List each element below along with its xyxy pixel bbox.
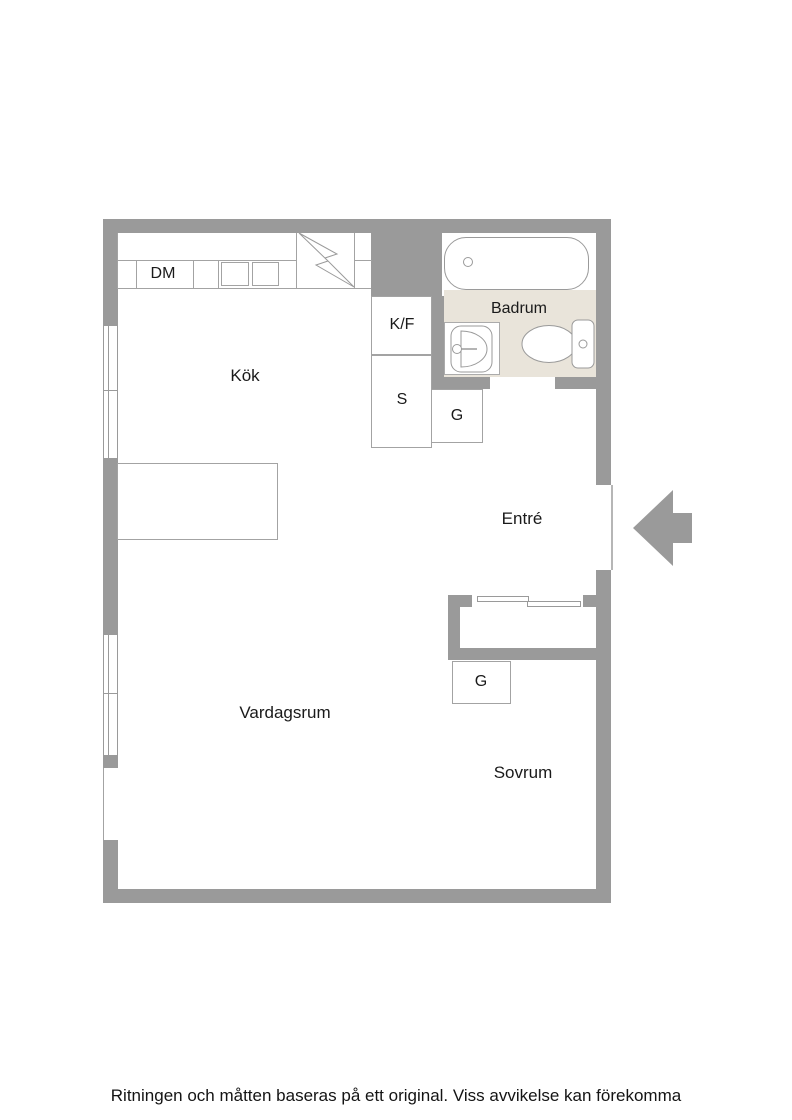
kitchen-sink-bowl — [252, 262, 279, 286]
washbasin-icon — [445, 323, 501, 376]
bathtub-drain-icon — [463, 257, 473, 267]
wall-bathroom-bottom-left — [431, 376, 490, 389]
fixture-label-fridge-freezer: K/F — [390, 316, 415, 334]
cabinet-divider — [193, 260, 194, 289]
room-label-entrance: Entré — [502, 509, 543, 529]
wall-closet-stub-left — [448, 595, 472, 607]
disclaimer-text: Ritningen och måtten baseras på ett orig… — [0, 1086, 792, 1106]
entrance-arrow-icon — [630, 488, 694, 568]
sliding-door-symbol — [477, 596, 529, 602]
wall-kitchen-bathroom-block — [371, 233, 442, 296]
counter-line — [118, 260, 296, 261]
wall-right-lower — [596, 570, 611, 903]
window-glass-line — [108, 635, 109, 755]
wall-closet-stub-right — [583, 595, 596, 607]
wall-right-upper — [596, 219, 611, 485]
fixture-label-wardrobe-entrance: G — [451, 407, 463, 425]
wall-left-middle — [103, 458, 118, 635]
balcony-opening-line — [103, 768, 104, 840]
fixture-label-pantry: S — [397, 391, 408, 409]
room-label-bedroom: Sovrum — [494, 763, 553, 783]
cabinet-divider — [354, 233, 355, 289]
window-divider — [104, 390, 117, 391]
wall-bathroom-bottom-right — [555, 376, 596, 389]
kitchen-table — [117, 463, 278, 540]
wall-left-upper — [103, 219, 118, 326]
cabinet-divider — [136, 260, 137, 289]
window-symbol-kitchen — [103, 326, 118, 458]
wall-bottom — [103, 889, 611, 903]
fixture-label-wardrobe-bedroom: G — [475, 673, 487, 691]
floor-plan: Kök Badrum Entré Vardagsrum Sovrum DM K/… — [0, 0, 792, 1120]
wall-top — [103, 219, 611, 233]
window-glass-line — [108, 326, 109, 458]
room-label-bathroom: Badrum — [491, 300, 547, 318]
wall-bathroom-left — [431, 296, 444, 376]
room-label-livingroom: Vardagsrum — [239, 703, 330, 723]
window-divider — [104, 693, 117, 694]
sink-unit — [444, 322, 500, 375]
kitchen-sink-bowl — [221, 262, 249, 286]
entrance-door-threshold — [611, 485, 613, 570]
stove-lightning-icon — [296, 233, 354, 289]
fixture-label-dishwasher: DM — [151, 265, 176, 283]
toilet-icon — [520, 318, 596, 371]
room-label-kitchen: Kök — [230, 366, 259, 386]
sliding-door-symbol — [527, 601, 581, 607]
wall-closet-bottom — [448, 648, 596, 660]
cabinet-divider — [218, 260, 219, 289]
window-symbol-livingroom — [103, 635, 118, 755]
wall-left-small — [103, 755, 118, 768]
counter-line — [354, 260, 372, 261]
